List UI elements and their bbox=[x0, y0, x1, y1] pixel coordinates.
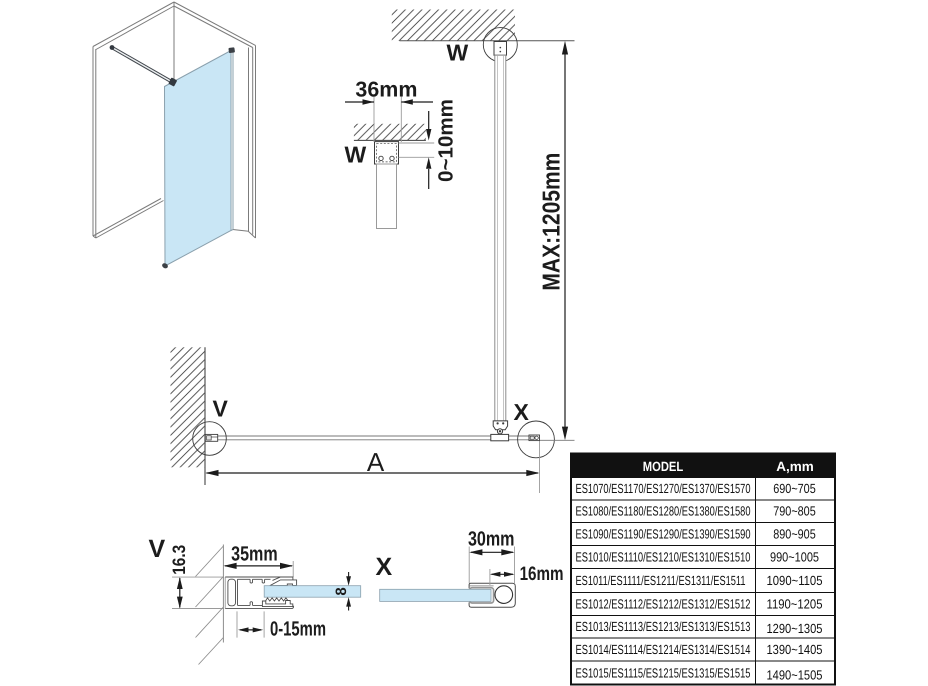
svg-text:W: W bbox=[447, 40, 469, 66]
svg-text:0~10mm: 0~10mm bbox=[435, 99, 458, 182]
svg-text:890~905: 890~905 bbox=[773, 526, 816, 541]
svg-text:X: X bbox=[376, 553, 393, 581]
svg-text:ES1014/ES1114/ES1214/ES1314/ES: ES1014/ES1114/ES1214/ES1314/ES1514 bbox=[576, 642, 751, 657]
svg-text:16.3: 16.3 bbox=[169, 545, 189, 575]
svg-text:8: 8 bbox=[333, 587, 350, 595]
svg-text:A,mm: A,mm bbox=[776, 459, 814, 474]
svg-text:1390~1405: 1390~1405 bbox=[767, 642, 823, 657]
svg-text:1290~1305: 1290~1305 bbox=[767, 621, 823, 636]
svg-text:W: W bbox=[345, 142, 367, 168]
svg-text:16mm: 16mm bbox=[520, 563, 564, 585]
svg-text:1090~1105: 1090~1105 bbox=[767, 573, 823, 588]
svg-text:990~1005: 990~1005 bbox=[770, 549, 819, 564]
svg-text:V: V bbox=[149, 535, 166, 563]
svg-text:1490~1505: 1490~1505 bbox=[767, 667, 823, 682]
svg-text:690~705: 690~705 bbox=[773, 481, 816, 496]
svg-text:MODEL: MODEL bbox=[643, 459, 684, 474]
svg-text:790~805: 790~805 bbox=[773, 503, 816, 518]
svg-text:MAX:1205mm: MAX:1205mm bbox=[539, 153, 566, 291]
svg-text:V: V bbox=[213, 396, 229, 422]
svg-text:ES1080/ES1180/ES1280/ES1380/ES: ES1080/ES1180/ES1280/ES1380/ES1580 bbox=[576, 504, 751, 519]
svg-text:36mm: 36mm bbox=[355, 77, 417, 101]
svg-text:ES1015/ES1115/ES1215/ES1315/ES: ES1015/ES1115/ES1215/ES1315/ES1515 bbox=[576, 666, 751, 681]
svg-text:ES1070/ES1170/ES1270/ES1370/ES: ES1070/ES1170/ES1270/ES1370/ES1570 bbox=[576, 481, 751, 496]
svg-text:0-15mm: 0-15mm bbox=[270, 617, 326, 640]
svg-text:35mm: 35mm bbox=[231, 542, 278, 565]
svg-text:1190~1205: 1190~1205 bbox=[767, 596, 823, 611]
svg-text:30mm: 30mm bbox=[468, 528, 515, 551]
svg-text:ES1090/ES1190/ES1290/ES1390/ES: ES1090/ES1190/ES1290/ES1390/ES1590 bbox=[576, 527, 751, 542]
svg-text:ES1011/ES1111/ES1211/ES1311/ES: ES1011/ES1111/ES1211/ES1311/ES1511 bbox=[576, 573, 746, 588]
svg-text:ES1012/ES1112/ES1212/ES1312/ES: ES1012/ES1112/ES1212/ES1312/ES1512 bbox=[576, 597, 751, 612]
svg-text:X: X bbox=[514, 399, 530, 425]
svg-text:ES1010/ES1110/ES1210/ES1310/ES: ES1010/ES1110/ES1210/ES1310/ES1510 bbox=[576, 550, 751, 565]
svg-text:ES1013/ES1113/ES1213/ES1313/ES: ES1013/ES1113/ES1213/ES1313/ES1513 bbox=[576, 619, 751, 634]
